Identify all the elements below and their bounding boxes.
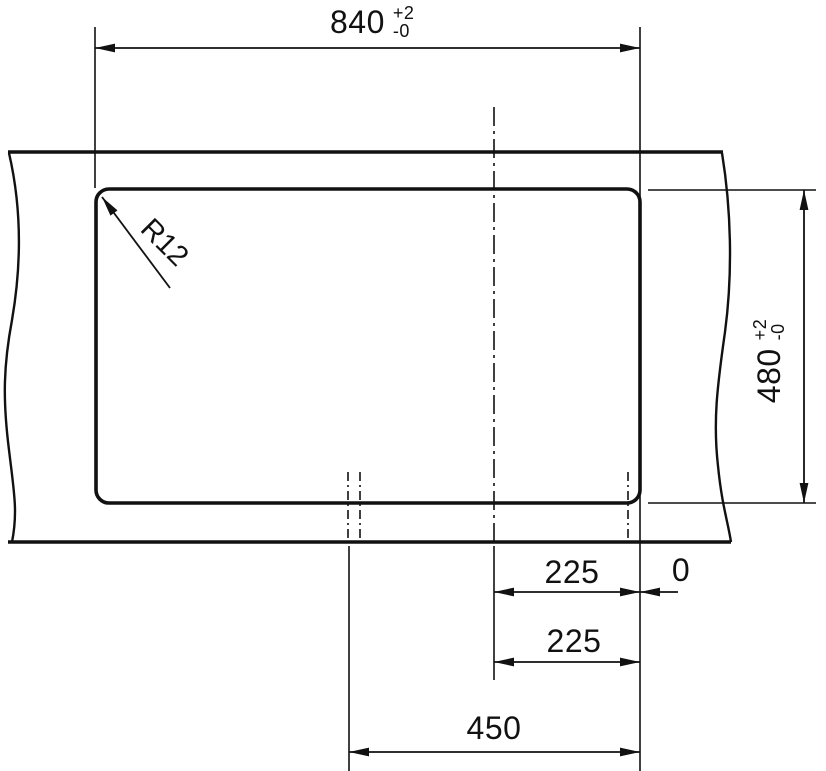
technical-drawing: 840 +2 -0 480 +2 -0 R12 225 0 225 450 [0,0,826,771]
width-tolerance-plus: +2 [393,4,415,22]
width-value: 840 [330,5,385,39]
height-value: 480 [752,348,786,403]
width-tolerance: +2 -0 [393,4,415,40]
half-width-label: 450 [467,711,522,745]
width-dimension-label: 840 +2 -0 [330,4,414,40]
center-to-edge-upper-label: 225 [545,555,600,589]
height-dimension-label: 480 +2 -0 [751,319,787,403]
break-line-left [5,153,19,542]
break-line-right [716,153,731,542]
height-tolerance: +2 -0 [751,319,787,341]
drawing-linework [0,0,826,771]
zero-reference-label: 0 [672,553,690,587]
height-tolerance-minus: -0 [769,319,787,341]
height-tolerance-plus: +2 [751,319,769,341]
center-to-edge-lower-label: 225 [547,624,602,658]
width-tolerance-minus: -0 [393,22,415,40]
